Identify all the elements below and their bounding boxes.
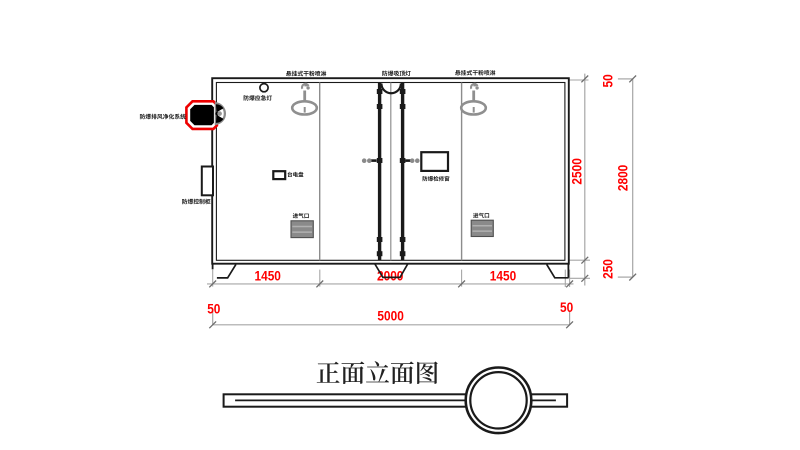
svg-text:1450: 1450 — [490, 269, 517, 284]
svg-text:50: 50 — [207, 301, 221, 316]
svg-text:5000: 5000 — [377, 309, 404, 324]
svg-text:50: 50 — [601, 74, 616, 88]
svg-text:2800: 2800 — [616, 164, 631, 191]
svg-text:250: 250 — [600, 259, 615, 279]
svg-text:2500: 2500 — [570, 158, 585, 185]
svg-text:2000: 2000 — [377, 269, 404, 284]
svg-text:50: 50 — [560, 300, 574, 315]
svg-text:1450: 1450 — [255, 268, 282, 283]
